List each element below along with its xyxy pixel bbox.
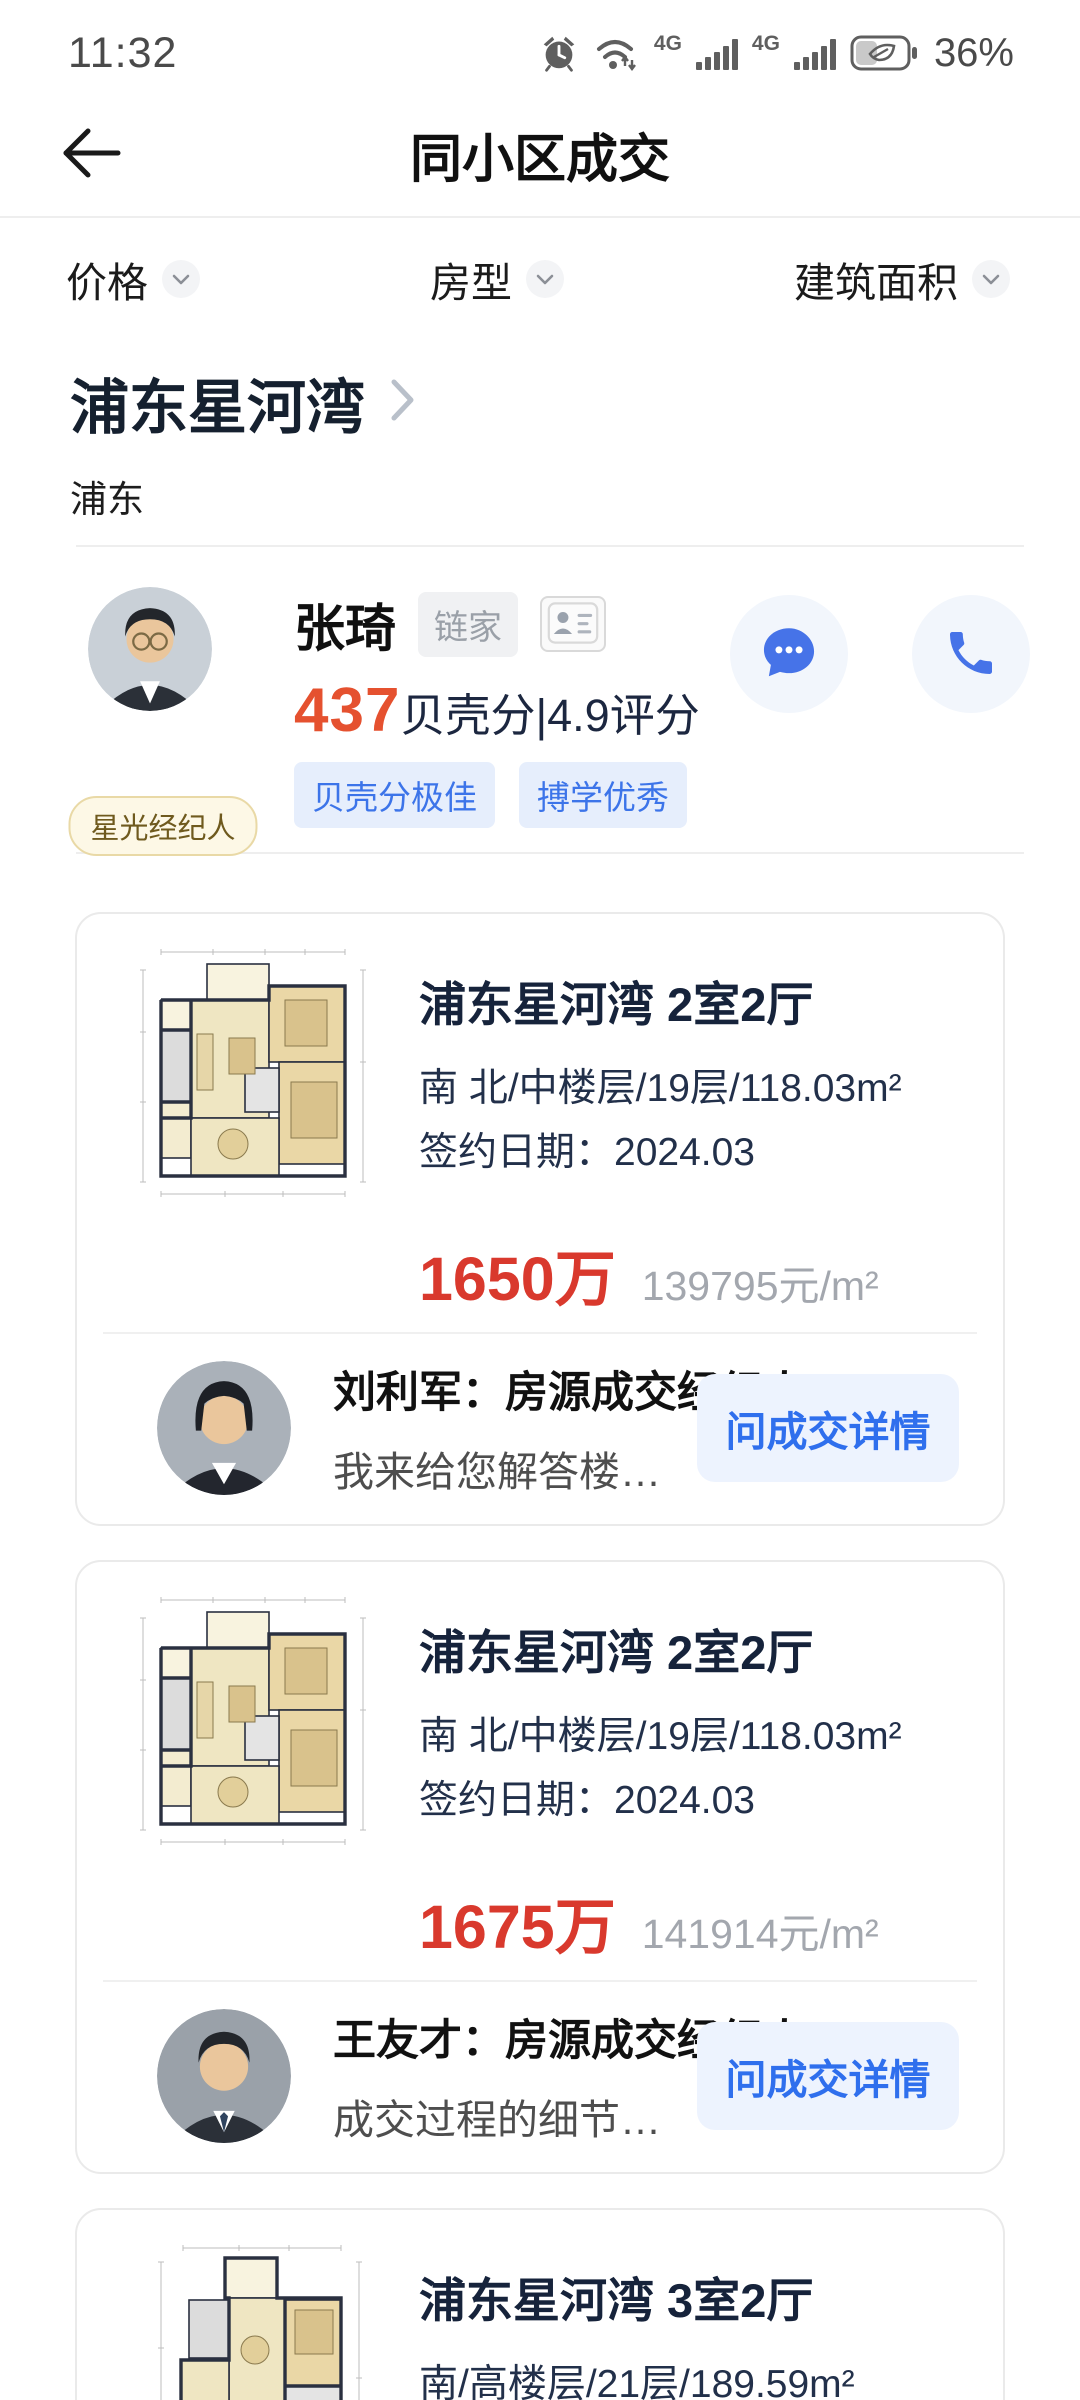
filter-bar: 价格 房型 建筑面积 xyxy=(0,218,1080,340)
nav-bar: 同小区成交 xyxy=(0,92,1080,216)
unit-price: 139795元/m² xyxy=(642,1252,879,1312)
deal-agent-photo xyxy=(157,2009,291,2143)
star-agent-badge: 星光经纪人 xyxy=(68,796,257,856)
ask-deal-detail-button[interactable]: 问成交详情 xyxy=(697,1374,959,1482)
deal-card[interactable]: 浦东星河湾 2室2厅 南 北/中楼层/19层/118.03m² 签约日期：202… xyxy=(75,912,1005,1526)
business-card-button[interactable] xyxy=(540,596,606,652)
deal-agent-row: 刘利军：房源成交经纪人 我来给您解答楼层税费装… 问成交详情 xyxy=(77,1334,1003,1524)
listing-sign-date: 签约日期：2024.03 xyxy=(419,1777,963,1825)
agent-actions xyxy=(730,595,1030,828)
unit-price: 141914元/m² xyxy=(642,1900,879,1960)
listing-title: 浦东星河湾 3室2厅 xyxy=(419,2262,963,2331)
filter-layout[interactable]: 房型 xyxy=(430,249,564,309)
beike-score-label: 贝壳分|4.9评分 xyxy=(400,679,699,744)
deal-agent-name: 王友才：房源成交经纪人 xyxy=(333,2006,697,2068)
cell-signal-icon xyxy=(696,36,738,70)
filter-area[interactable]: 建筑面积 xyxy=(794,249,1010,309)
community-section: 浦东星河湾 浦东 xyxy=(0,340,1080,545)
alarm-icon xyxy=(538,32,580,74)
deal-price: 1650万 xyxy=(419,1229,616,1318)
deal-agent-message: 我来给您解答楼层税费装… xyxy=(333,1438,697,1498)
floor-plan-image xyxy=(133,1590,373,1850)
deal-list: 浦东星河湾 2室2厅 南 北/中楼层/19层/118.03m² 签约日期：202… xyxy=(0,854,1080,2400)
beike-score: 437 xyxy=(294,675,400,746)
community-district: 浦东 xyxy=(70,469,1010,545)
agent-info: 张琦 链家 437 xyxy=(294,587,710,828)
deal-agent-name: 刘利军：房源成交经纪人 xyxy=(333,1358,697,1420)
back-button[interactable] xyxy=(56,122,126,186)
cell-signal-icon xyxy=(794,36,836,70)
clock-time: 11:32 xyxy=(68,29,177,78)
agent-tags: 贝壳分极佳 搏学优秀 xyxy=(294,762,710,828)
deal-agent-photo xyxy=(157,1361,291,1495)
battery-percent: 36% xyxy=(934,31,1014,76)
deal-card[interactable]: 浦东星河湾 2室2厅 南 北/中楼层/19层/118.03m² 签约日期：202… xyxy=(75,1560,1005,2174)
call-button[interactable] xyxy=(912,595,1030,713)
deal-agent-message: 成交过程的细节可以给您… xyxy=(333,2086,697,2146)
status-bar: 11:32 xyxy=(0,0,1080,92)
network-type-badge: 4G xyxy=(752,32,780,56)
wifi-icon xyxy=(594,32,640,74)
status-icons: 4G 4G 36% xyxy=(538,31,1014,76)
deal-card[interactable]: 浦东星河湾 3室2厅 南/高楼层/21层/189.59m² 签约日期：2024.… xyxy=(75,2208,1005,2400)
filter-price[interactable]: 价格 xyxy=(66,249,200,309)
agent-section: 星光经纪人 张琦 链家 xyxy=(0,547,1080,852)
listing-attributes: 南 北/中楼层/19层/118.03m² xyxy=(419,1713,963,1761)
agent-tag: 搏学优秀 xyxy=(519,762,687,828)
chevron-down-icon xyxy=(526,260,564,298)
community-link[interactable]: 浦东星河湾 xyxy=(70,360,1010,445)
listing-attributes: 南/高楼层/21层/189.59m² xyxy=(419,2361,963,2400)
chat-button[interactable] xyxy=(730,595,848,713)
chevron-down-icon xyxy=(972,260,1010,298)
network-type-badge: 4G xyxy=(654,32,682,56)
floor-plan-image xyxy=(133,2238,373,2400)
deal-agent-row: 王友才：房源成交经纪人 成交过程的细节可以给您… 问成交详情 xyxy=(77,1982,1003,2172)
back-arrow-icon xyxy=(58,125,124,184)
agent-avatar[interactable]: 星光经纪人 xyxy=(88,587,238,828)
chevron-right-icon xyxy=(387,376,417,429)
agent-name: 张琦 xyxy=(294,587,396,661)
listing-sign-date: 签约日期：2024.03 xyxy=(419,1129,963,1177)
floor-plan-image xyxy=(133,942,373,1202)
chat-bubble-icon xyxy=(758,622,820,687)
listing-title: 浦东星河湾 2室2厅 xyxy=(419,1614,963,1683)
app-screen: 11:32 xyxy=(0,0,1080,2400)
listing-title: 浦东星河湾 2室2厅 xyxy=(419,966,963,1035)
brand-tag: 链家 xyxy=(418,592,518,657)
phone-icon xyxy=(943,625,999,684)
page-title: 同小区成交 xyxy=(0,117,1080,192)
agent-photo xyxy=(88,587,212,711)
ask-deal-detail-button[interactable]: 问成交详情 xyxy=(697,2022,959,2130)
agent-tag: 贝壳分极佳 xyxy=(294,762,495,828)
business-card-icon xyxy=(547,602,599,647)
battery-saver-icon xyxy=(850,34,918,72)
listing-attributes: 南 北/中楼层/19层/118.03m² xyxy=(419,1065,963,1113)
community-name: 浦东星河湾 xyxy=(70,360,365,445)
deal-price: 1675万 xyxy=(419,1877,616,1966)
chevron-down-icon xyxy=(162,260,200,298)
